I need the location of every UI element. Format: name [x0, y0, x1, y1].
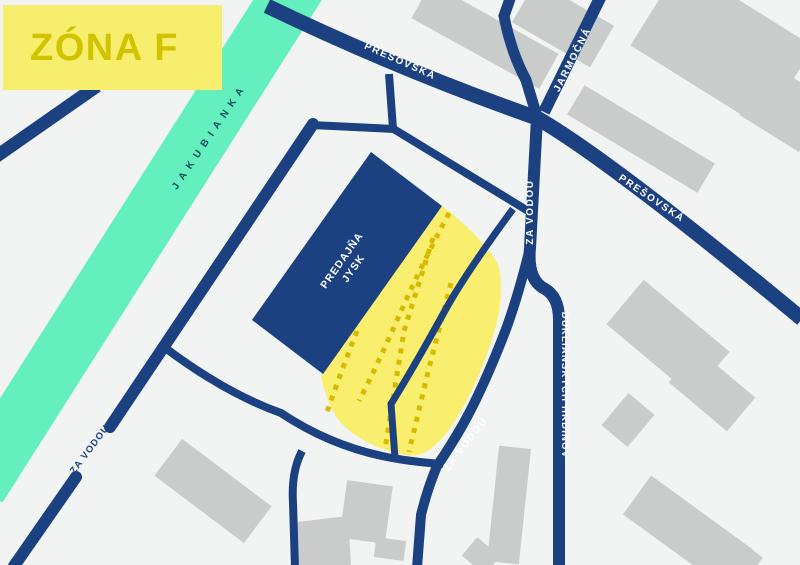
street-label-dukliansky: DUKLIANSKYCH HRDINOV [559, 312, 570, 458]
zone-map-screenshot: PREDAJŇA JYSK JAKUBIANKA PREŠOVSKÁ PREŠO… [0, 0, 800, 565]
map-canvas: PREDAJŇA JYSK JAKUBIANKA PREŠOVSKÁ PREŠO… [0, 0, 800, 565]
building [339, 480, 393, 544]
road-block-stub [389, 74, 393, 129]
road-block-top [311, 125, 394, 129]
zone-banner-label: ZÓNA F [30, 25, 179, 69]
building [374, 537, 406, 561]
street-label-zavodou-vertical: ZA VODOU [525, 179, 536, 244]
